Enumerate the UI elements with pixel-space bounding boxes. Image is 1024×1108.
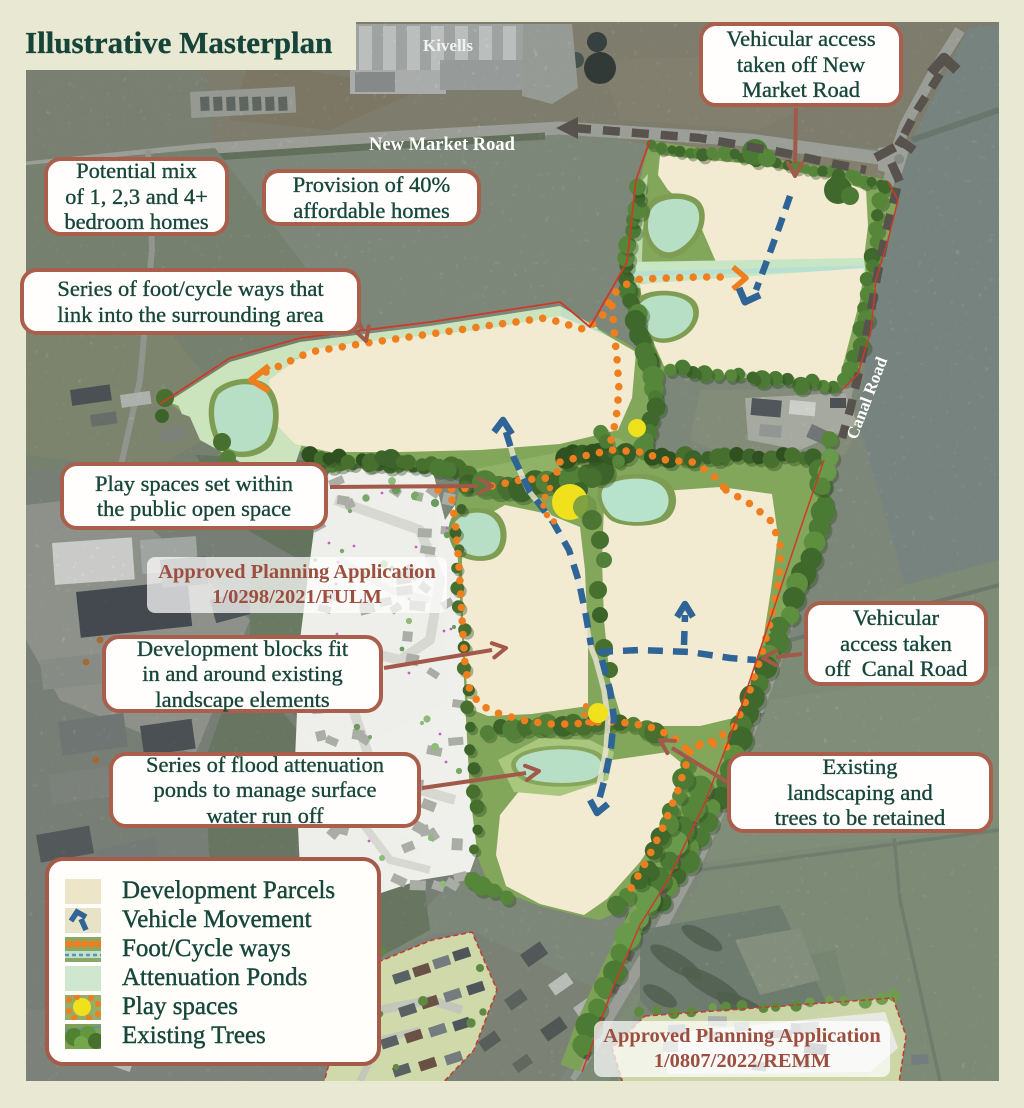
svg-text:Kivells: Kivells xyxy=(423,36,473,55)
svg-text:New Market Road: New Market Road xyxy=(369,135,516,155)
